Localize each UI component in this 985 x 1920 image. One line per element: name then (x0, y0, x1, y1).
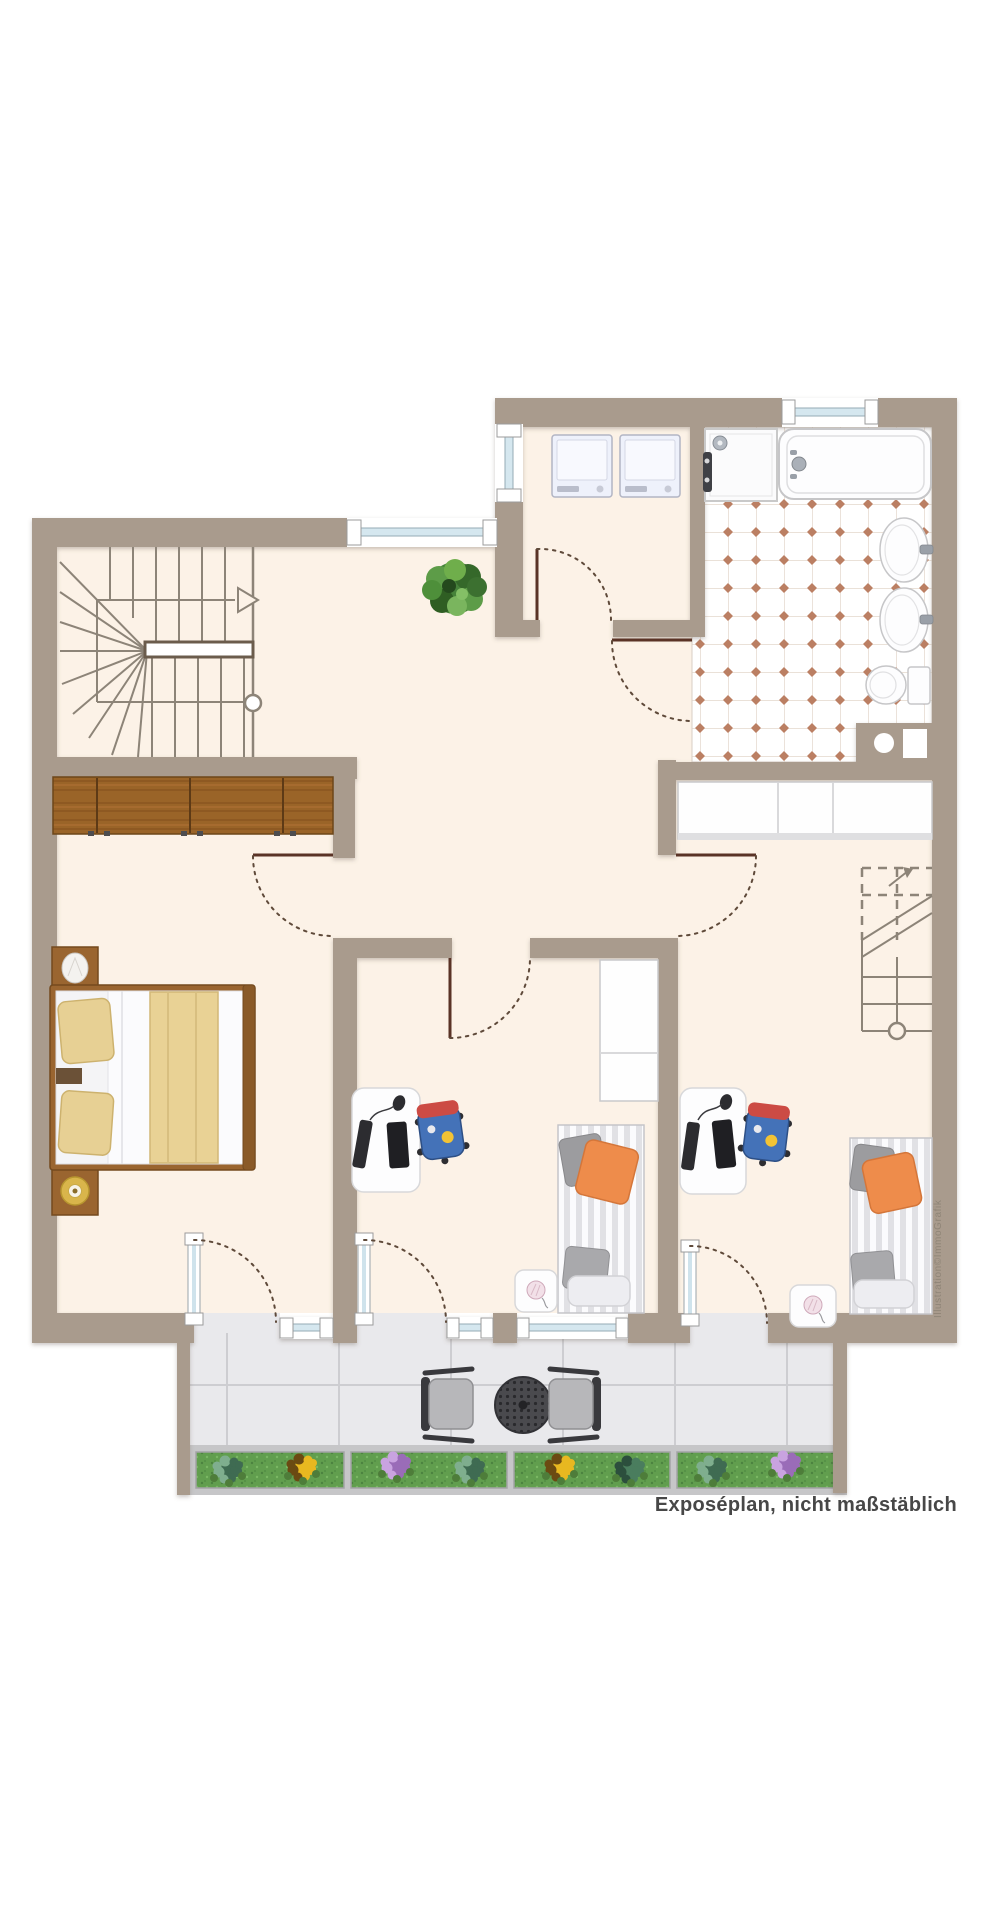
bed-blanket (150, 992, 218, 1163)
washing-machine-2-panel (625, 486, 647, 492)
window-bath-glazing (794, 408, 866, 416)
flower-sunflowers (287, 1460, 296, 1469)
bed-center-gap (56, 1068, 82, 1084)
flower-bush (627, 1479, 635, 1487)
sink-1-faucet (920, 545, 933, 554)
flower-bush (640, 1472, 648, 1480)
shaft-square (903, 729, 927, 758)
planter-box (514, 1452, 670, 1488)
bathtub-handle (790, 474, 797, 479)
window-cap (681, 1314, 699, 1326)
washing-machine-2-lid (625, 440, 675, 480)
window-cap (497, 489, 521, 502)
sideboard-knob (197, 831, 203, 836)
desk-child1-keyboard (386, 1121, 409, 1168)
wall-balcony-left (177, 1330, 190, 1495)
flower-sunflowers (545, 1460, 554, 1469)
sideboard-knob (181, 831, 187, 836)
flower-bush (467, 1479, 475, 1487)
flower-bush (612, 1474, 620, 1482)
flower-purple (768, 1469, 776, 1477)
upper-stair-newel-post (889, 1023, 905, 1039)
side-table-child1-lamp (527, 1281, 545, 1299)
window-cap (447, 1318, 459, 1338)
wall-bath-left (690, 427, 705, 637)
illustrator-credit: Illustration©ImmoGrafik (933, 1200, 944, 1318)
hall-plant (422, 580, 442, 600)
sideboard-knob (290, 831, 296, 836)
wall-top-hall (32, 518, 347, 547)
wall-utility-south-left (495, 620, 540, 637)
flower-bush (709, 1479, 717, 1487)
wall-balcony-right (833, 1343, 847, 1493)
window-cap (865, 400, 878, 424)
flower-bush (455, 1462, 464, 1471)
flower-purple (796, 1467, 804, 1475)
bed-footboard (243, 985, 255, 1170)
flower-purple (393, 1475, 401, 1483)
flower-sunflowers (312, 1470, 320, 1478)
wall-bedroom-return (333, 773, 355, 858)
wall-mid-horizontal-right (530, 938, 678, 958)
window-cap (517, 1318, 529, 1338)
sideboard-knob (274, 831, 280, 836)
sideboard-knob (88, 831, 94, 836)
wall-bottom-mid (628, 1313, 658, 1343)
flower-sunflowers (567, 1459, 575, 1467)
washing-machine-2-knob (665, 486, 672, 493)
window-south-a-glazing (291, 1324, 322, 1331)
hall-plant (467, 577, 487, 597)
sideboard (53, 777, 333, 834)
flower-bush (480, 1472, 488, 1480)
flower-sunflowers (542, 1472, 550, 1480)
wall-mid-horizontal-left (333, 938, 452, 958)
flower-purple (403, 1457, 411, 1465)
window-cap (185, 1233, 203, 1245)
window-utility-glazing (505, 434, 513, 492)
flower-bush (719, 1461, 727, 1469)
child1-wardrobe (600, 960, 658, 1101)
wall-child1-child2 (658, 938, 678, 1343)
window-cap (782, 400, 795, 424)
flower-sunflowers (284, 1472, 292, 1480)
floorplan-drawing (0, 0, 985, 1920)
flower-bush (213, 1462, 222, 1471)
window-cap (347, 520, 361, 545)
toilet-bowl (866, 666, 906, 704)
washing-machine-1-lid (557, 440, 607, 480)
flower-sunflowers (309, 1459, 317, 1467)
shower-head-dot (718, 441, 723, 446)
window-cap (483, 520, 497, 545)
wall-bath-south (658, 762, 932, 780)
flower-bush (722, 1472, 730, 1480)
hall-plant (456, 588, 468, 600)
flower-bush (637, 1461, 645, 1469)
balcony-chair-right-seat (549, 1379, 593, 1429)
nightstand-lamp-gold-dot (73, 1189, 78, 1194)
window-cap (497, 424, 521, 437)
flower-bush (694, 1474, 702, 1482)
balcony-door-glazing (688, 1247, 692, 1319)
window-cap (616, 1318, 628, 1338)
threshold-balcony-door-child2 (690, 1313, 768, 1333)
shower-knob (705, 478, 710, 483)
sink-2-faucet (920, 615, 933, 624)
window-cap (355, 1233, 373, 1245)
toilet-tank (908, 667, 930, 704)
hall-plant (442, 579, 456, 593)
wall-under-stairs (32, 757, 357, 779)
floorplan-page: Exposéplan, nicht maßstäblich Illustrati… (0, 0, 985, 1920)
flower-bush (477, 1461, 485, 1469)
plan-caption: Exposéplan, nicht maßstäblich (655, 1494, 957, 1517)
hall-wardrobe (678, 782, 932, 839)
flower-sunflowers (557, 1477, 565, 1485)
wall-left-outer (32, 518, 57, 1343)
flower-bush (235, 1461, 243, 1469)
bed-pillow (58, 1090, 114, 1155)
wall-top-utility (495, 398, 782, 427)
wall-bottom-bedroom (32, 1313, 194, 1343)
window-south-b2-glazing (528, 1324, 617, 1331)
window-cap (320, 1318, 333, 1338)
wall-bath-south-west (613, 620, 692, 637)
bathtub-handle (790, 450, 797, 455)
window-cap (280, 1318, 293, 1338)
side-table-child2-lamp (804, 1296, 822, 1314)
sideboard-knob (104, 831, 110, 836)
balcony-door-glazing (192, 1240, 196, 1318)
wall-corridor-left (658, 760, 676, 855)
washing-machine-1-panel (557, 486, 579, 492)
flower-purple (783, 1474, 791, 1482)
flower-bush (210, 1474, 218, 1482)
flower-sunflowers (570, 1470, 578, 1478)
threshold-balcony-door-bedroom (194, 1313, 280, 1333)
flower-purple (793, 1456, 801, 1464)
window-cap (481, 1318, 493, 1338)
bed-pillow (57, 998, 114, 1064)
balcony-chair-left-seat (429, 1379, 473, 1429)
flower-sunflowers (299, 1477, 307, 1485)
stair-landing (145, 642, 253, 657)
balcony-door-glazing (362, 1240, 366, 1318)
flower-bush (452, 1474, 460, 1482)
hall-plant (444, 559, 466, 581)
shaft-circle (874, 733, 894, 753)
shower-knob (705, 459, 710, 464)
flower-bush (697, 1462, 706, 1471)
flower-purple (406, 1468, 414, 1476)
flower-bush (238, 1472, 246, 1480)
flower-purple (771, 1457, 780, 1466)
window-cap (355, 1313, 373, 1325)
flower-bush (225, 1479, 233, 1487)
flower-bush (615, 1462, 624, 1471)
wall-bottom-pier (493, 1313, 517, 1343)
single-bed-child2-orange-pillow (861, 1151, 923, 1215)
balcony-table-hole (519, 1401, 528, 1410)
stair-newel-post (245, 695, 261, 711)
bathtub-faucet (792, 457, 806, 471)
window-cap (185, 1313, 203, 1325)
single-bed-child2-pillow (854, 1280, 914, 1308)
flower-purple (378, 1470, 386, 1478)
washing-machine-1-knob (597, 486, 604, 493)
window-hall-glazing (358, 528, 486, 536)
flower-purple (381, 1458, 390, 1467)
window-south-b1-glazing (457, 1324, 483, 1331)
hall-wardrobe-front (678, 833, 932, 840)
single-bed-child1-pillow (568, 1276, 630, 1306)
shower-fitting-bar (703, 452, 712, 492)
